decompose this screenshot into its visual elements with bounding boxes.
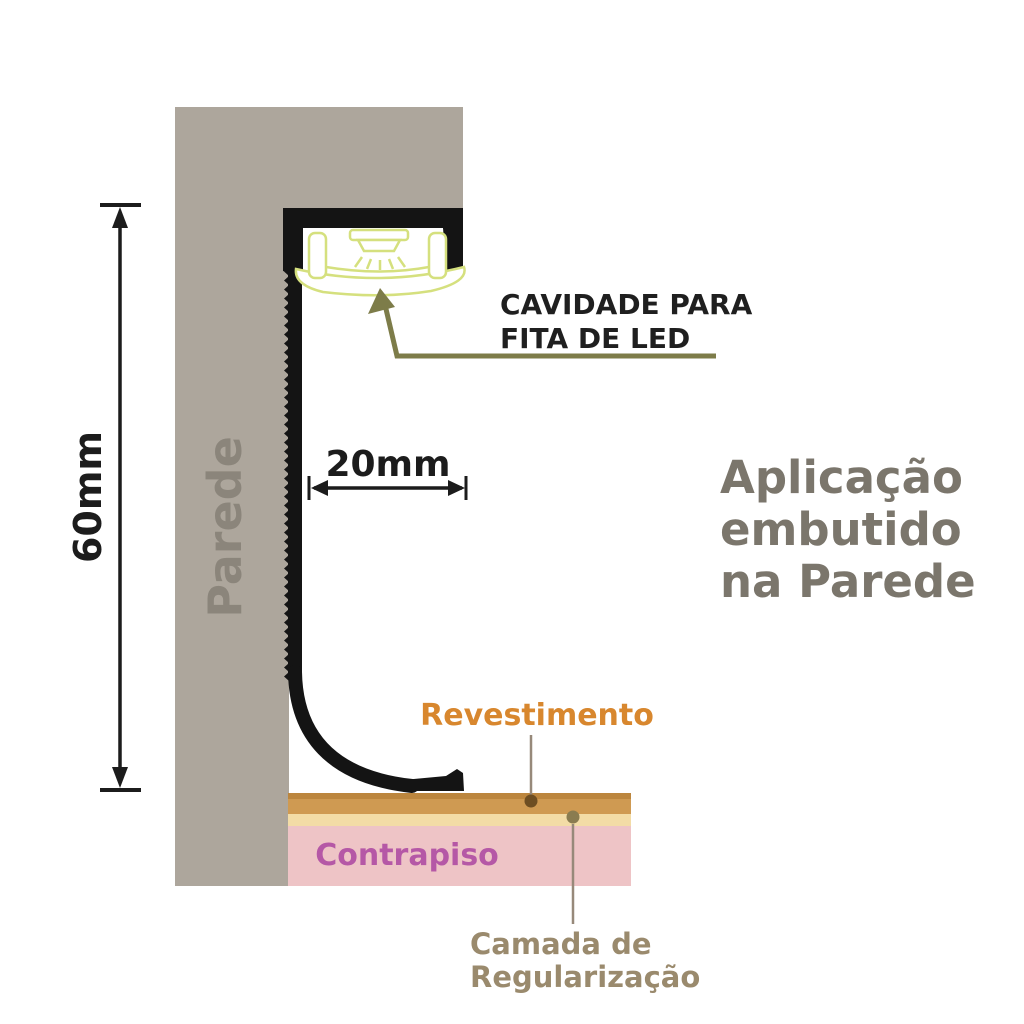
diagram-canvas: Parede 60mm 20mm CAVIDADE PARA FITA DE L… <box>0 0 1024 1024</box>
wall-label: Parede <box>195 387 255 667</box>
arrow-up-icon <box>112 207 128 228</box>
led-cavity <box>296 228 465 295</box>
cavity-label-line2: FITA DE LED <box>500 322 752 356</box>
revestimento-label: Revestimento <box>407 698 667 733</box>
cavity-label-line1: CAVIDADE PARA <box>500 288 752 322</box>
profile-channel-top <box>283 208 463 229</box>
title-line3: na Parede <box>720 556 976 608</box>
regularizacao-label-line1: Camada de <box>470 928 700 961</box>
regularizacao-dot-icon <box>567 811 580 824</box>
page-title: Aplicação embutido na Parede <box>720 452 976 608</box>
contrapiso-label: Contrapiso <box>307 838 507 873</box>
diffuser-clip-right <box>429 233 446 278</box>
arrow-down-icon <box>112 767 128 788</box>
regularizacao-label-line2: Regularização <box>470 961 700 994</box>
diffuser-clip-left <box>309 233 326 278</box>
regularizacao-label: Camada de Regularização <box>470 928 700 994</box>
profile-cove-curve <box>295 672 412 786</box>
profile-foot <box>398 769 464 791</box>
revestimento-callout <box>525 735 538 808</box>
height-dim-label: 60mm <box>63 397 113 597</box>
led-body <box>358 240 400 251</box>
title-line2: embutido <box>720 504 976 556</box>
title-line1: Aplicação <box>720 452 976 504</box>
led-base <box>350 230 408 240</box>
cavity-label: CAVIDADE PARA FITA DE LED <box>500 288 752 356</box>
revestimento-layer-edge <box>288 793 631 799</box>
width-dim-label: 20mm <box>288 444 488 485</box>
revestimento-dot-icon <box>525 795 538 808</box>
regularizacao-layer <box>288 814 631 826</box>
